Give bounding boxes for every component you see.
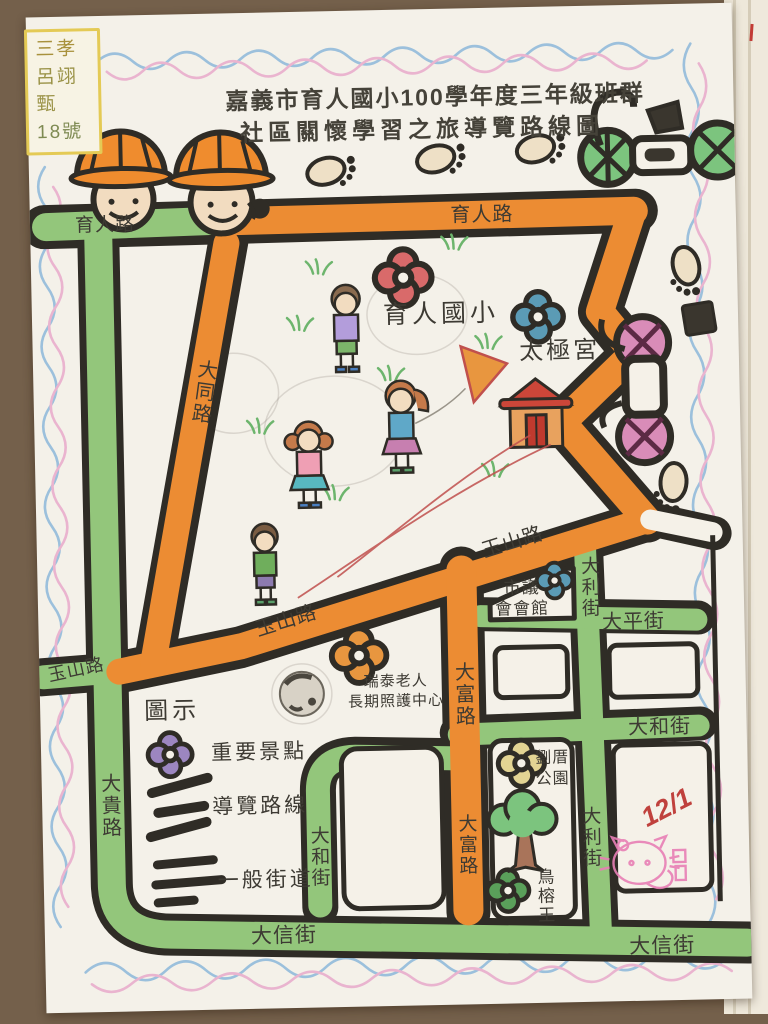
legend-item-important: 重要景點 bbox=[203, 740, 315, 765]
child-boy-1 bbox=[331, 285, 361, 373]
child-girl-2 bbox=[284, 421, 334, 508]
child-boy-2 bbox=[251, 523, 279, 605]
legend-title: 圖示 bbox=[142, 698, 203, 726]
landmark-label-eldercare: 瑞泰老人 長期照護中心 bbox=[317, 670, 474, 712]
road-label-dafu-lower: 大富路 bbox=[454, 806, 476, 882]
road-label-dali-lower: 大利街 bbox=[578, 802, 600, 872]
child-girl-kite bbox=[381, 380, 429, 473]
landmark-label-temple: 太極宮 bbox=[510, 337, 609, 365]
road-label-daxin-right: 大信街 bbox=[621, 934, 703, 959]
landmark-label-council: 市議 會會館 bbox=[492, 577, 551, 621]
legend-item-street: 一般街道 bbox=[210, 867, 322, 892]
student-number: 18號 bbox=[37, 118, 98, 147]
map-paper: 三孝 呂翊甄 18號 嘉義市育人國小100學年度三年級班群 社區關懷學習之旅導覽… bbox=[26, 3, 753, 1014]
student-name: 呂翊甄 bbox=[36, 63, 97, 119]
legend-item-route: 導覽路線 bbox=[204, 794, 316, 819]
landmark-label-park: 劉厝 公園 bbox=[533, 748, 572, 790]
legend-route-symbol bbox=[150, 778, 209, 837]
class-name: 三孝 bbox=[35, 35, 96, 64]
landmark-label-school: 育人國小 bbox=[378, 300, 505, 330]
school-flower-icon bbox=[374, 249, 432, 307]
yushan-east-stub bbox=[650, 518, 712, 533]
block-b bbox=[609, 644, 698, 698]
road-label-daping: 大平街 bbox=[594, 610, 672, 634]
block-a bbox=[495, 646, 568, 697]
road-label-yuren-right: 育人路 bbox=[442, 203, 522, 227]
map-drawing bbox=[26, 3, 753, 1014]
road-label-dagui: 大貴路 bbox=[97, 748, 121, 864]
road-label-daxin-left: 大信街 bbox=[243, 923, 325, 948]
photo-of-hand-drawn-map: 三孝 呂翊甄 18號 嘉義市育人國小100學年度三年級班群 社區關懷學習之旅導覽… bbox=[0, 0, 768, 1024]
landmark-label-banyan: 鳥榕王 bbox=[533, 863, 553, 929]
road-label-dahe-right: 大和街 bbox=[620, 716, 698, 740]
student-name-note: 三孝 呂翊甄 18號 bbox=[24, 28, 103, 156]
temple-house bbox=[499, 378, 572, 447]
legend-flower-icon bbox=[148, 732, 193, 777]
arch-inner-block bbox=[341, 747, 444, 909]
temple-flower-icon bbox=[512, 291, 563, 342]
road-label-yuren-left: 育人路 bbox=[70, 215, 140, 237]
